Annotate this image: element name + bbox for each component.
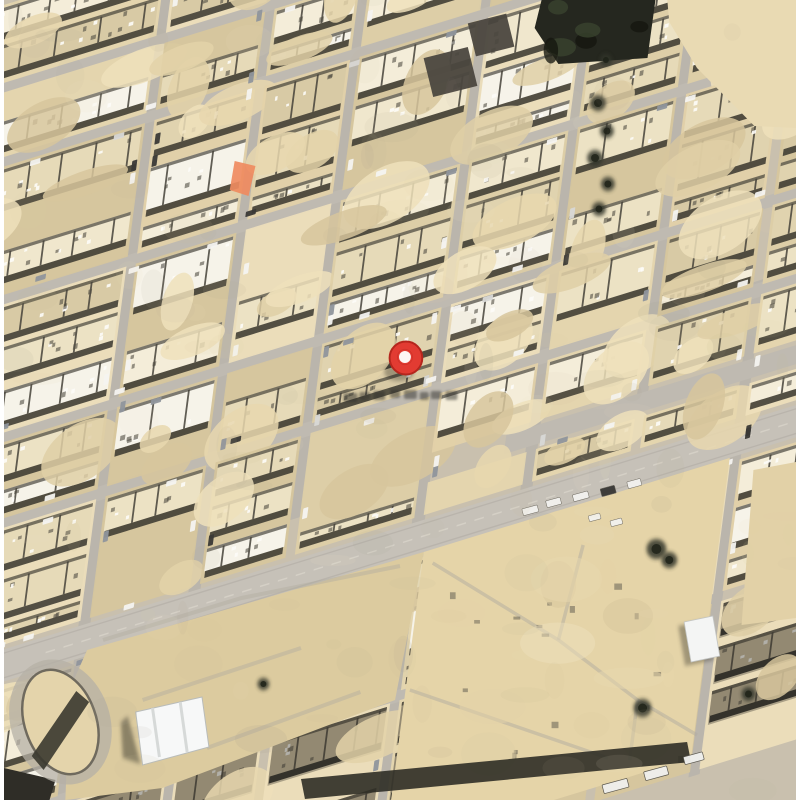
page-margin-left [0,0,4,800]
page-margin-right [796,0,800,800]
white-hut [684,616,720,662]
satellite-map[interactable] [4,0,796,800]
satellite-imagery [4,0,796,800]
screenshot-root [0,0,800,800]
marker-inner-dot [399,351,411,363]
